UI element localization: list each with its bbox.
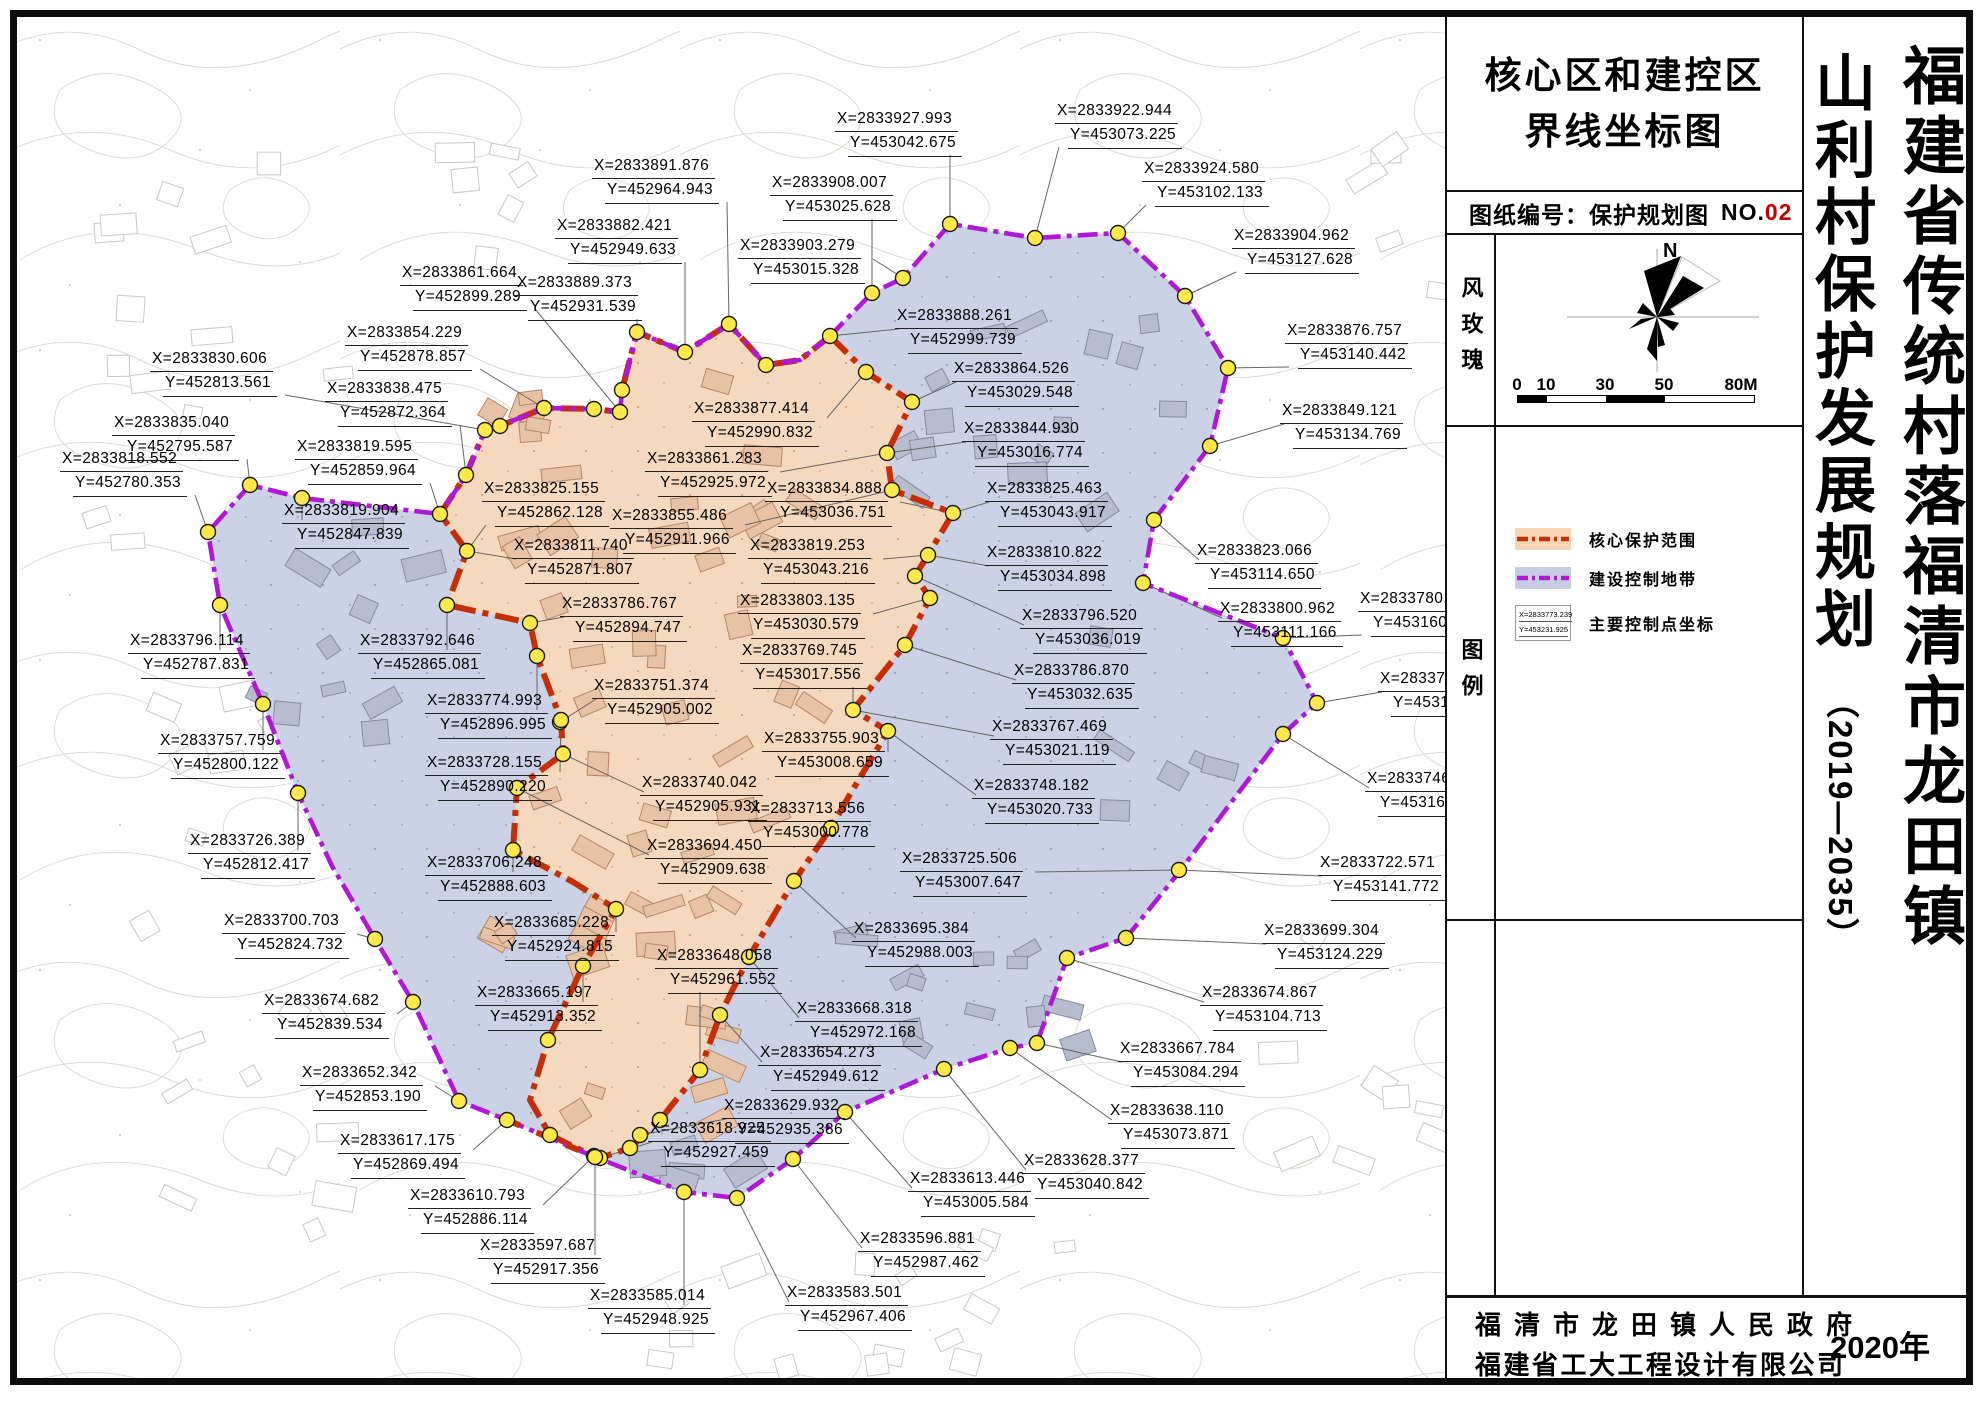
coordinate-sample-swatch: X=2833773.239 Y=453231.925 xyxy=(1515,605,1571,641)
control-point-label: X=2833597.687Y=452917.356 xyxy=(478,1235,605,1284)
control-point-label: X=2833810.822Y=453034.898 xyxy=(985,542,1112,591)
control-point-label: X=2833927.993Y=453042.675 xyxy=(835,108,962,157)
north-indicator: N xyxy=(1663,240,1677,262)
control-point-label: X=2833864.526Y=453029.548 xyxy=(952,358,1079,407)
control-point-label: X=2833596.881Y=452987.462 xyxy=(858,1228,985,1277)
control-point-label: X=2833618.925Y=452927.459 xyxy=(648,1118,775,1167)
control-point-label: X=2833722.571Y=453141.772 xyxy=(1318,852,1445,901)
control-point-label: X=2833706.248Y=452888.603 xyxy=(425,852,552,901)
control-point-label: X=2833610.793Y=452886.114 xyxy=(408,1185,534,1234)
empty-side-cell xyxy=(1447,921,1496,1297)
control-point-label: X=2833849.121Y=453134.769 xyxy=(1280,400,1407,449)
control-point-label: X=2833748.182Y=453020.733 xyxy=(972,775,1099,824)
control-point-label: X=2833728.155Y=452890.220 xyxy=(425,752,552,801)
control-point-label: X=2833674.867Y=453104.713 xyxy=(1200,982,1327,1031)
control-point-label: X=2833757.759Y=452800.122 xyxy=(158,730,285,779)
control-point-label: X=2833844.930Y=453016.774 xyxy=(962,418,1089,467)
panel-column: 核心区和建控区 界线坐标图 图纸编号：保护规划图 NO.02 风玫瑰 xyxy=(1447,17,1802,1295)
control-point-label: X=2833882.421Y=452949.633 xyxy=(555,215,682,264)
scale-bar: 0 10 30 50 80M xyxy=(1517,375,1755,403)
legend-item-label: 核心保护范围 xyxy=(1589,527,1697,551)
control-point-label: X=2833834.888Y=453036.751 xyxy=(765,478,892,527)
control-point-label: X=2833823.066Y=453114.650 xyxy=(1195,540,1321,589)
control-point-label: X=2833819.904Y=452847.839 xyxy=(282,500,409,549)
control-point-label: X=2833774.993Y=452896.995 xyxy=(425,690,552,739)
sheet-number-label: 图纸编号：保护规划图 xyxy=(1469,196,1709,230)
core-boundary-swatch xyxy=(1515,528,1571,550)
control-point-label: X=2833825.155Y=452862.128 xyxy=(482,478,609,527)
legend-item-core: 核心保护范围 xyxy=(1515,527,1715,551)
control-point-label: X=2833585.014Y=452948.925 xyxy=(588,1285,715,1334)
legend-item-control: 建设控制地带 xyxy=(1515,566,1715,590)
control-point-label: X=2833648.058Y=452961.552 xyxy=(655,945,782,994)
drawing-title-line2: 界线坐标图 xyxy=(1525,104,1725,160)
empty-panel-section xyxy=(1447,919,1802,1297)
legend-items: 核心保护范围 建设控制地带 X=2833773.239 Y=453231.925 xyxy=(1515,527,1715,656)
control-point-label: X=2833819.595Y=452859.964 xyxy=(295,436,422,485)
control-point-label: X=2833825.463Y=453043.917 xyxy=(985,478,1112,527)
legend-item-label: 主要控制点坐标 xyxy=(1589,611,1715,635)
publisher-block: 福清市龙田镇人民政府 福建省工大工程设计有限公司 2020年 xyxy=(1447,1295,1968,1381)
control-point-label: X=2833811.740Y=452871.807 xyxy=(512,535,639,584)
drawing-title: 核心区和建控区 界线坐标图 xyxy=(1447,17,1802,190)
publish-year: 2020年 xyxy=(1830,1322,1930,1367)
control-point-label: X=2833838.475Y=452872.364 xyxy=(325,378,452,427)
control-point-label: X=2833889.373Y=452931.539 xyxy=(515,272,642,321)
sample-x: X=2833773.239 xyxy=(1519,609,1572,622)
control-point-label: X=2833877.414Y=452990.832 xyxy=(692,398,819,447)
control-point-label: X=2833903.279Y=453015.328 xyxy=(738,235,865,284)
control-point-label: X=2833767.469Y=453021.119 xyxy=(990,716,1116,765)
wind-rose-label-cell: 风玫瑰 xyxy=(1447,235,1496,425)
control-point-label: X=2833654.273Y=452949.612 xyxy=(758,1042,885,1091)
control-point-label: X=2833854.229Y=452878.857 xyxy=(345,322,472,371)
control-point-label: X=2833861.664Y=452899.289 xyxy=(400,262,527,311)
plan-title-vertical: 山利村保护发展规划 （2019—2035） xyxy=(1808,51,1872,953)
control-point-label: X=2833796.114Y=452787.831 xyxy=(128,630,255,679)
region-title-vertical: 福建省传统村落福清市龙田镇 xyxy=(1896,43,1962,953)
wind-rose-icon: N xyxy=(1497,237,1797,372)
legend-label-cell: 图例 xyxy=(1447,427,1496,921)
control-point-label: X=2833726.389Y=452812.417 xyxy=(188,830,315,879)
control-point-label: X=2833667.784Y=453084.294 xyxy=(1118,1038,1245,1087)
control-point-label: X=2833891.876Y=452964.943 xyxy=(592,155,719,204)
scale-tick: 50 xyxy=(1655,375,1674,395)
control-point-label: X=2833818.552Y=452780.353 xyxy=(60,448,187,497)
sheet-number-value: 02 xyxy=(1765,199,1793,226)
legend-item-label: 建设控制地带 xyxy=(1589,566,1697,590)
control-point-label: X=2833685.228Y=452924.815 xyxy=(492,912,619,961)
sheet-number-row: 图纸编号：保护规划图 NO.02 xyxy=(1447,190,1802,235)
control-point-label: X=2833699.304Y=453124.229 xyxy=(1262,920,1389,969)
control-point-label: X=2833861.283Y=452925.972 xyxy=(645,448,772,497)
legend-label: 图例 xyxy=(1455,638,1487,710)
info-panel: 核心区和建控区 界线坐标图 图纸编号：保护规划图 NO.02 风玫瑰 xyxy=(1445,17,1968,1378)
control-point-label: X=2833668.318Y=452972.168 xyxy=(795,998,922,1047)
drawing-title-line1: 核心区和建控区 xyxy=(1485,48,1765,104)
control-point-label: X=2833665.197Y=452913.352 xyxy=(475,982,602,1031)
scale-tick: 10 xyxy=(1537,375,1556,395)
wind-rose-label: 风玫瑰 xyxy=(1455,276,1487,384)
main-title-column: 山利村保护发展规划 （2019—2035） 福建省传统村落福清市龙田镇 xyxy=(1802,17,1970,1295)
control-point-label: X=2833830.606Y=452813.561 xyxy=(150,348,277,397)
control-point-label: X=2833819.253Y=453043.216 xyxy=(748,535,875,584)
sheet-number-prefix: NO. xyxy=(1721,199,1765,226)
publisher-government: 福清市龙田镇人民政府 xyxy=(1475,1305,1865,1342)
legend-item-points: X=2833773.239 Y=453231.925 主要控制点坐标 xyxy=(1515,605,1715,641)
control-point-label: X=2833792.646Y=452865.081 xyxy=(358,630,485,679)
control-point-label: X=2833924.580Y=453102.133 xyxy=(1142,158,1269,207)
control-point-label: X=2833725.506Y=453007.647 xyxy=(900,848,1027,897)
control-point-label: X=2833674.682Y=452839.534 xyxy=(262,990,389,1039)
control-point-label: X=2833583.501Y=452967.406 xyxy=(785,1282,912,1331)
scale-bar-ticks: 0 10 30 50 80M xyxy=(1517,375,1755,395)
control-boundary-swatch xyxy=(1515,567,1571,589)
control-point-label: X=2833786.870Y=453032.635 xyxy=(1012,660,1139,709)
scale-tick: 80M xyxy=(1724,375,1757,395)
scale-tick: 0 xyxy=(1512,375,1521,395)
control-point-label: X=2833695.384Y=452988.003 xyxy=(852,918,979,967)
plan-title-text: 山利村保护发展规划 xyxy=(1806,51,1874,654)
legend-section: 图例 核心保护范围 建设控 xyxy=(1447,425,1802,921)
control-point-label: X=2833876.757Y=453140.442 xyxy=(1285,320,1412,369)
control-point-label: X=2833904.962Y=453127.628 xyxy=(1232,225,1359,274)
publisher-names: 福清市龙田镇人民政府 福建省工大工程设计有限公司 xyxy=(1475,1305,1865,1382)
sample-y: Y=453231.925 xyxy=(1519,624,1568,637)
scale-tick: 30 xyxy=(1596,375,1615,395)
control-point-label: X=2833769.745Y=453017.556 xyxy=(740,640,867,689)
control-point-label: X=2833617.175Y=452869.494 xyxy=(338,1130,465,1179)
wind-rose-section: 风玫瑰 N 0 xyxy=(1447,235,1802,425)
control-point-label: X=2833652.342Y=452853.190 xyxy=(300,1062,427,1111)
control-point-label: X=2833694.450Y=452909.638 xyxy=(645,835,772,884)
control-point-label: X=2833755.903Y=453008.659 xyxy=(762,728,889,777)
control-point-label: X=2833628.377Y=453040.842 xyxy=(1022,1150,1149,1199)
control-point-label: X=2833922.944Y=453073.225 xyxy=(1055,100,1182,149)
plan-title-years: （2019—2035） xyxy=(1822,685,1859,953)
control-point-label: X=2833800.962Y=453111.166 xyxy=(1218,598,1343,647)
control-point-label: X=2833803.135Y=453030.579 xyxy=(738,590,865,639)
publisher-design-firm: 福建省工大工程设计有限公司 xyxy=(1475,1345,1865,1382)
scale-bar-segments xyxy=(1517,395,1755,403)
control-point-label: X=2833700.703Y=452824.732 xyxy=(222,910,349,959)
control-point-label: X=2833888.261Y=452999.739 xyxy=(895,305,1022,354)
control-point-label: X=2833751.374Y=452905.002 xyxy=(592,675,719,724)
control-point-label: X=2833796.520Y=453036.019 xyxy=(1020,605,1147,654)
control-point-label: X=2833786.767Y=452894.747 xyxy=(560,593,687,642)
control-point-label: X=2833613.446Y=453005.584 xyxy=(908,1168,1035,1217)
plan-sheet: X=2833830.606Y=452813.561X=2833835.040Y=… xyxy=(0,0,1987,1403)
control-point-label: X=2833638.110Y=453073.871 xyxy=(1108,1100,1235,1149)
control-point-label: X=2833908.007Y=453025.628 xyxy=(770,172,897,221)
